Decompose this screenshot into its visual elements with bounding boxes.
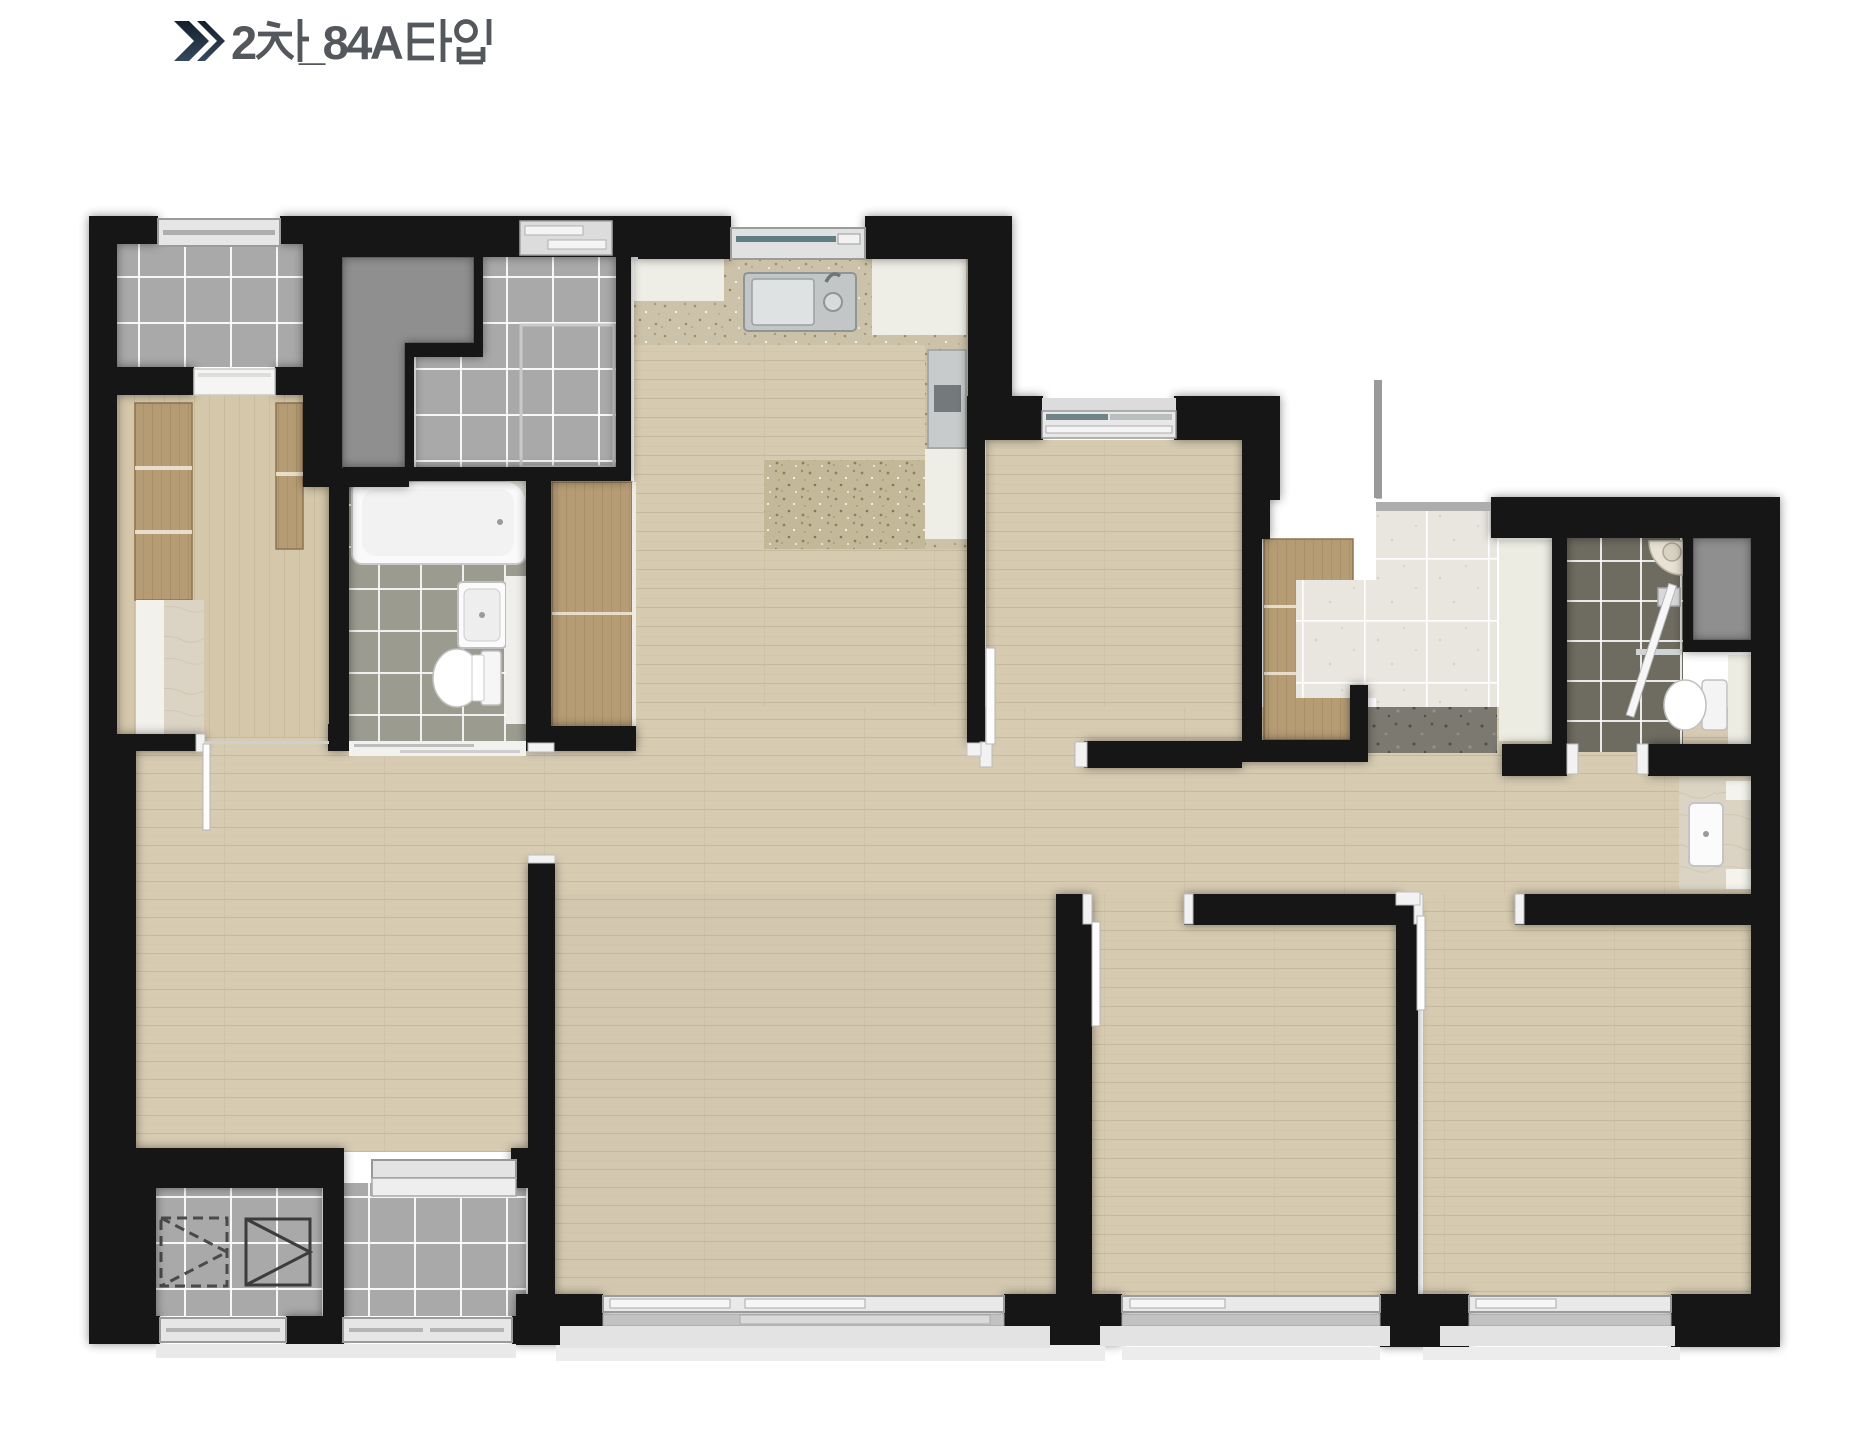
svg-text:_84A: _84A [298, 16, 403, 69]
svg-text:2: 2 [231, 16, 256, 69]
